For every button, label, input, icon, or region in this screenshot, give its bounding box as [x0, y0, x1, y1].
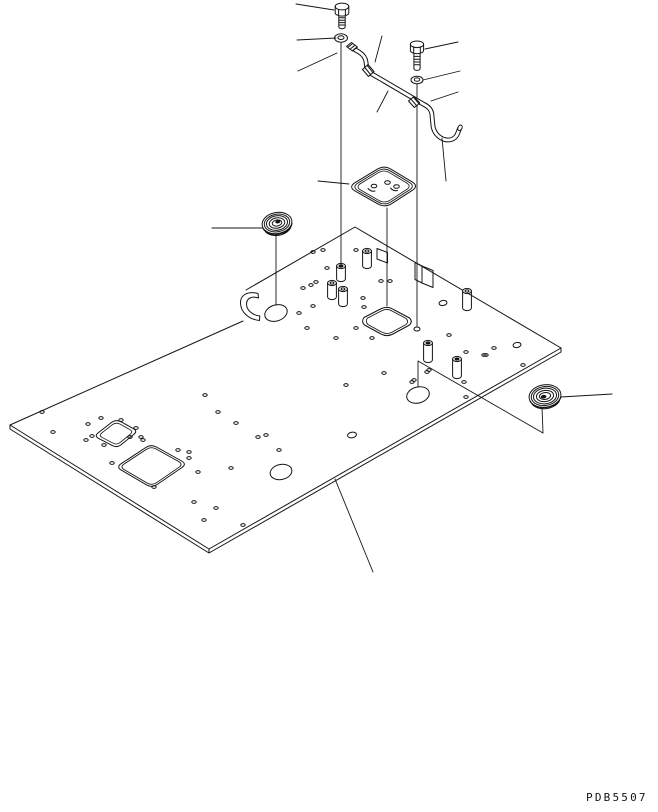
plate-hole	[139, 436, 143, 439]
plate-opening-small	[96, 421, 135, 447]
plate-hole	[214, 507, 218, 510]
leader-line	[297, 38, 336, 40]
leader-line	[318, 181, 349, 184]
plate-hole	[134, 427, 138, 430]
plate-hole	[192, 501, 196, 504]
boss-top	[328, 280, 337, 285]
plate-hole	[492, 347, 496, 350]
plate-edge-thickness	[10, 348, 561, 553]
plate-hole	[152, 486, 156, 489]
leader-line	[377, 91, 388, 112]
flat-washer-lower	[411, 76, 423, 84]
plate-hole	[187, 451, 191, 454]
plate-hole	[301, 287, 305, 290]
bent-bracket	[415, 263, 433, 288]
plate-boss	[463, 288, 472, 310]
plate-hole	[176, 449, 180, 452]
plate-hole	[264, 434, 268, 437]
plate-hole	[110, 462, 114, 465]
plate-hole	[84, 439, 88, 442]
edge-hook-bracket	[240, 293, 259, 321]
bolt-shank-threads	[414, 54, 420, 71]
plate-hole	[86, 423, 90, 426]
plate-hole	[321, 249, 325, 252]
leader-line	[561, 394, 612, 397]
plate-boss	[328, 280, 337, 299]
assembly-line	[418, 361, 543, 433]
plate-hole	[379, 280, 383, 283]
access-cover	[352, 167, 416, 206]
plate-hole	[102, 444, 106, 447]
boss-top	[463, 288, 472, 293]
leader-line	[431, 92, 458, 101]
drawing-code: PDB5507	[586, 791, 648, 804]
plate-boss	[339, 286, 348, 306]
plate-hole	[203, 394, 207, 397]
plate-hole	[314, 281, 318, 284]
plate-oval-hole	[513, 342, 522, 348]
plate-hole	[427, 369, 431, 372]
bolt-head-top	[335, 3, 349, 10]
grommet-left	[260, 210, 294, 238]
plate-hole	[297, 312, 301, 315]
plate-hole	[334, 337, 338, 340]
plate-hole	[344, 384, 348, 387]
plate-oval-hole	[439, 300, 448, 306]
plate-hole	[462, 381, 466, 384]
plate-hole	[305, 327, 309, 330]
plate-holes	[40, 249, 525, 527]
leader-line	[298, 53, 337, 71]
leader-line	[423, 71, 460, 80]
leader-line	[425, 42, 458, 49]
plate-boss	[363, 248, 372, 268]
plate-hole	[382, 372, 386, 375]
boss-top	[339, 286, 348, 291]
boss-top	[363, 248, 372, 253]
plate-oval-hole	[414, 327, 420, 331]
plate-boss	[337, 263, 346, 281]
boss-hole	[426, 342, 430, 344]
plate-hole	[521, 364, 525, 367]
plate-hole	[311, 305, 315, 308]
plate-hole	[187, 457, 191, 460]
leader-line	[442, 138, 446, 181]
leader-line	[296, 4, 334, 10]
plate-boss	[453, 356, 462, 378]
plate-hole	[40, 411, 44, 414]
leader-lines	[212, 4, 612, 572]
plate-hole	[51, 431, 55, 434]
plate-hole	[141, 439, 145, 442]
plate-hole	[202, 519, 206, 522]
plate-hole	[354, 249, 358, 252]
floor-plate	[10, 227, 561, 553]
plate-hole	[119, 419, 123, 422]
plate-hole	[277, 449, 281, 452]
plate-bosses	[328, 248, 472, 378]
plate-opening-large	[119, 446, 185, 487]
plate-boss	[424, 340, 433, 362]
plate-hole	[370, 337, 374, 340]
plate-hole	[447, 334, 451, 337]
plate-outline	[10, 227, 561, 549]
hex-bolt-lower	[410, 41, 423, 70]
plate-hole	[99, 417, 103, 420]
plate-oval-hole	[347, 431, 357, 438]
leader-line	[375, 36, 382, 62]
plate-hole	[354, 327, 358, 330]
plate-hole	[241, 524, 245, 527]
plate-hole	[229, 467, 233, 470]
plate-hole	[464, 396, 468, 399]
plate-hole	[464, 351, 468, 354]
plate-hole	[196, 471, 200, 474]
plate-hole	[90, 435, 94, 438]
plate-hole	[216, 411, 220, 414]
tab-bracket	[377, 249, 388, 264]
plate-oval-hole	[405, 384, 431, 405]
plate-hole	[234, 422, 238, 425]
leader-line	[335, 479, 373, 572]
diagram-sheet: PDB5507	[0, 0, 658, 812]
plate-hole	[309, 284, 313, 287]
hex-bolt-upper	[335, 3, 349, 29]
bent-control-rod	[352, 48, 463, 140]
flat-washer-upper	[335, 34, 348, 42]
plate-opening-cover-seat	[363, 307, 412, 335]
bolt-shank-threads	[339, 16, 345, 29]
plate-hole	[412, 379, 416, 382]
plate-hole	[256, 436, 260, 439]
rod-end-cap	[457, 124, 463, 131]
plate-hole	[388, 280, 392, 283]
plate-hole	[361, 297, 365, 300]
bolt-head-top	[410, 41, 423, 48]
plate-oval-holes	[263, 300, 522, 482]
parts-diagram	[0, 0, 658, 812]
grommet-right	[528, 383, 563, 411]
plate-hole	[325, 267, 329, 270]
boss-hole	[455, 358, 459, 360]
plate-oval-hole	[269, 462, 294, 481]
plate-hole	[362, 306, 366, 309]
